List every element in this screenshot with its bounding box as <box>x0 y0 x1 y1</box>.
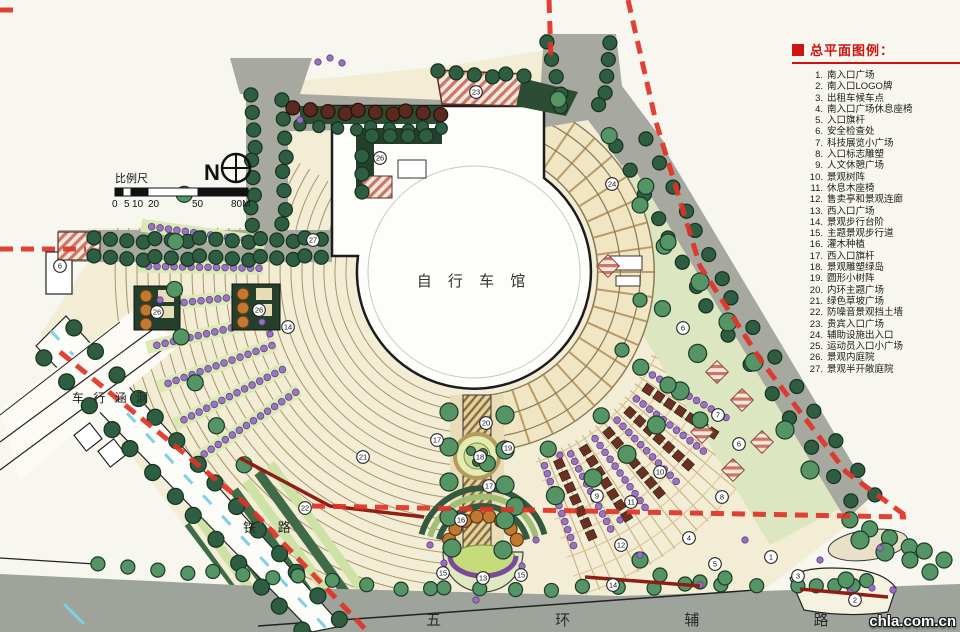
tree <box>386 107 400 121</box>
tree <box>652 212 666 226</box>
scale-label: 比例尺 <box>115 171 148 185</box>
tree <box>592 98 606 112</box>
tree <box>575 579 589 593</box>
tree <box>419 129 433 143</box>
svg-text:22: 22 <box>301 504 309 513</box>
tree <box>148 232 162 246</box>
svg-text:10: 10 <box>656 468 664 477</box>
tree <box>509 583 523 597</box>
plan-marker: 21 <box>357 451 370 464</box>
plan-marker: 26 <box>374 152 387 165</box>
svg-text:24: 24 <box>608 180 616 189</box>
tree <box>208 531 224 547</box>
tree <box>618 445 636 463</box>
plan-marker: 6 <box>733 438 746 451</box>
tree <box>151 563 165 577</box>
tree <box>270 251 284 265</box>
plan-marker: 13 <box>477 572 490 585</box>
svg-text:14: 14 <box>284 323 292 332</box>
tree <box>486 70 500 84</box>
tree <box>271 598 287 614</box>
northwest-junction <box>230 58 312 94</box>
svg-text:15: 15 <box>517 571 525 580</box>
svg-text:12: 12 <box>617 541 625 550</box>
svg-text:18: 18 <box>476 453 484 462</box>
tree <box>120 234 134 248</box>
tree <box>394 582 408 596</box>
tree <box>278 203 292 217</box>
tree <box>192 249 206 263</box>
tree <box>916 543 932 559</box>
plan-marker: 24 <box>606 178 619 191</box>
legend-item: 11.休息木座椅 <box>806 183 960 194</box>
legend-item: 13.西入口广场 <box>806 206 960 217</box>
svg-text:0: 0 <box>112 199 118 210</box>
legend-item: 25.运动员入口小广场 <box>806 341 960 352</box>
svg-text:9: 9 <box>595 492 599 501</box>
tree <box>546 487 564 505</box>
legend-item: 8.入口标志雕塑 <box>806 149 960 160</box>
tree <box>449 66 463 80</box>
svg-text:23: 23 <box>472 88 480 97</box>
tree <box>431 64 445 78</box>
tree <box>338 106 352 120</box>
bottom-road-label: 五 环 辅 路 <box>426 612 884 629</box>
tree <box>245 105 259 119</box>
tree <box>600 69 614 83</box>
tree <box>351 103 365 117</box>
plan-marker: 19 <box>502 442 515 455</box>
svg-text:11: 11 <box>627 498 635 507</box>
tree <box>691 273 709 291</box>
tree <box>544 583 558 597</box>
tree <box>692 412 708 428</box>
tree <box>237 288 249 300</box>
svg-text:14: 14 <box>609 581 617 590</box>
legend-item: 15.主题景观步行道 <box>806 228 960 239</box>
tree <box>440 403 458 421</box>
plan-marker: 9 <box>591 490 604 503</box>
tree <box>278 131 292 145</box>
plan-marker: 8 <box>716 491 729 504</box>
plan-marker: 17 <box>483 480 496 493</box>
tree <box>360 578 374 592</box>
tree <box>639 132 653 146</box>
legend-item: 24.辅助设施出入口 <box>806 330 960 341</box>
tree <box>91 557 105 571</box>
tree <box>355 149 369 163</box>
svg-text:2: 2 <box>853 596 857 605</box>
svg-text:26: 26 <box>153 308 161 317</box>
plan-marker: 22 <box>299 502 312 515</box>
tree <box>702 248 716 262</box>
bench <box>616 276 640 286</box>
svg-text:15: 15 <box>439 569 447 578</box>
tree <box>838 572 854 588</box>
tree <box>173 329 189 345</box>
tree <box>332 122 344 134</box>
svg-text:6: 6 <box>737 440 741 449</box>
svg-text:7: 7 <box>716 411 720 420</box>
tree <box>470 510 483 523</box>
svg-text:3: 3 <box>796 572 800 581</box>
tree <box>148 250 162 264</box>
tree <box>652 156 666 170</box>
master-plan-page: 6232627262614246768109111245132142017191… <box>0 0 960 632</box>
plan-marker: 14 <box>607 579 620 592</box>
legend-item: 12.售卖亭和景观连廊 <box>806 194 960 205</box>
legend-item: 10.景观树阵 <box>806 172 960 183</box>
svg-text:10: 10 <box>132 199 144 210</box>
tree <box>331 611 347 627</box>
plan-marker: 27 <box>307 234 320 247</box>
legend-item: 14.景观步行台阶 <box>806 217 960 228</box>
plan-marker: 1 <box>765 551 778 564</box>
tree <box>746 320 760 334</box>
svg-text:17: 17 <box>485 482 493 491</box>
legend-item: 26.景观内庭院 <box>806 352 960 363</box>
tree <box>248 140 262 154</box>
tree <box>244 88 258 102</box>
svg-text:16: 16 <box>457 516 465 525</box>
legend-item: 19.圆形小树阵 <box>806 273 960 284</box>
legend-item: 5.入口旗杆 <box>806 115 960 126</box>
tree <box>801 461 819 479</box>
tree <box>87 343 103 359</box>
tree <box>209 232 223 246</box>
tree <box>776 421 794 439</box>
tree <box>276 112 290 126</box>
legend-item: 3.出租车候车点 <box>806 93 960 104</box>
tree <box>66 320 82 336</box>
plan-marker: 11 <box>625 496 638 509</box>
tree <box>922 564 938 580</box>
tree <box>247 123 261 137</box>
tree <box>245 218 259 232</box>
svg-text:6: 6 <box>58 262 62 271</box>
tree <box>540 441 556 457</box>
tree <box>647 416 665 434</box>
tree <box>399 104 413 118</box>
legend-item: 2.南入口LOGO牌 <box>806 81 960 92</box>
plan-marker: 5 <box>709 558 722 571</box>
tree <box>140 318 152 330</box>
tree <box>550 91 566 107</box>
tree <box>416 106 430 120</box>
plan-marker: 23 <box>470 86 483 99</box>
tree <box>279 150 293 164</box>
tree <box>236 568 250 582</box>
tree <box>209 250 223 264</box>
legend-panel: 总平面图例： 1.南入口广场2.南入口LOGO牌3.出租车候车点4.南入口广场休… <box>792 40 960 375</box>
tree <box>615 343 629 357</box>
tree <box>310 588 326 604</box>
tree <box>225 234 239 248</box>
tree <box>496 406 514 424</box>
svg-text:1: 1 <box>769 553 773 562</box>
tree <box>715 272 729 286</box>
legend-title: 总平面图例： <box>810 40 894 59</box>
tree <box>276 164 290 178</box>
plan-marker: 7 <box>712 409 725 422</box>
tree <box>104 422 120 438</box>
svg-text:21: 21 <box>359 453 367 462</box>
legend-items: 1.南入口广场2.南入口LOGO牌3.出租车候车点4.南入口广场休息座椅5.入口… <box>792 70 960 375</box>
tree <box>187 375 203 391</box>
tree <box>270 233 284 247</box>
tree <box>140 290 152 302</box>
north-label: N <box>204 160 220 185</box>
tree <box>633 293 647 307</box>
svg-text:17: 17 <box>433 436 441 445</box>
tree <box>206 564 220 578</box>
tree <box>181 566 195 580</box>
tree <box>321 105 335 119</box>
svg-text:26: 26 <box>376 154 384 163</box>
plan-marker: 20 <box>480 417 493 430</box>
legend-item: 9.人文休憩广场 <box>806 160 960 171</box>
tree <box>168 234 184 250</box>
tree <box>499 67 513 81</box>
tree <box>225 252 239 266</box>
tree <box>383 129 397 143</box>
legend-item: 7.科技展览小广场 <box>806 138 960 149</box>
tree <box>208 418 224 434</box>
svg-text:4: 4 <box>687 534 691 543</box>
tree <box>653 568 667 582</box>
plan-marker: 2 <box>849 594 862 607</box>
tree <box>121 560 135 574</box>
tree <box>286 101 300 115</box>
tree <box>103 232 117 246</box>
plan-marker: 17 <box>431 434 444 447</box>
legend-item: 1.南入口广场 <box>806 70 960 81</box>
svg-text:26: 26 <box>255 306 263 315</box>
tree <box>185 507 201 523</box>
svg-text:80M: 80M <box>231 199 250 210</box>
tree <box>237 316 249 328</box>
tree <box>496 511 514 529</box>
plan-marker: 12 <box>615 539 628 552</box>
legend-item: 16.灌木种植 <box>806 239 960 250</box>
legend-item: 17.西入口旗杆 <box>806 251 960 262</box>
tree <box>517 69 531 83</box>
tree <box>437 581 451 595</box>
tree <box>424 582 438 596</box>
plan-marker: 15 <box>515 569 528 582</box>
svg-text:19: 19 <box>504 444 512 453</box>
plan-marker: 18 <box>474 451 487 464</box>
tree <box>675 255 689 269</box>
tree <box>829 434 843 448</box>
tree <box>401 129 415 143</box>
plan-marker: 10 <box>654 466 667 479</box>
legend-item: 18.景观雕塑绿岛 <box>806 262 960 273</box>
tree <box>790 380 804 394</box>
tree <box>654 301 670 317</box>
tree <box>167 281 183 297</box>
tree <box>467 68 481 82</box>
svg-text:20: 20 <box>148 199 160 210</box>
tree <box>253 250 267 264</box>
tree <box>314 250 328 264</box>
tree <box>632 197 648 213</box>
tree <box>365 129 379 143</box>
plan-marker: 6 <box>677 322 690 335</box>
tree <box>601 128 617 144</box>
tree <box>435 122 447 134</box>
tree <box>120 252 134 266</box>
tree <box>549 70 563 84</box>
tree <box>623 163 637 177</box>
tree <box>313 121 325 133</box>
tree <box>87 249 101 263</box>
tree <box>434 108 448 122</box>
tree <box>275 217 289 231</box>
tree <box>294 622 310 632</box>
tree <box>351 124 363 136</box>
tree <box>660 377 676 393</box>
tree <box>164 251 178 265</box>
building-label: 自 行 车 馆 <box>417 273 532 290</box>
legend-item: 4.南入口广场休息座椅 <box>806 104 960 115</box>
tree <box>303 103 317 117</box>
svg-text:8: 8 <box>720 493 724 502</box>
tree <box>851 531 869 549</box>
tree <box>805 440 819 454</box>
tree <box>167 488 183 504</box>
plan-marker: 16 <box>455 514 468 527</box>
tree <box>266 571 280 585</box>
tree <box>633 359 649 375</box>
tree <box>440 473 458 491</box>
legend-bullet-icon <box>792 44 804 56</box>
tree <box>638 178 654 194</box>
culvert-label: 车 行 涵 洞 <box>72 390 151 405</box>
tree <box>768 350 782 364</box>
legend-item: 27.景观半开敞庭院 <box>806 364 960 375</box>
tree <box>87 231 101 245</box>
svg-text:5: 5 <box>124 199 130 210</box>
tree <box>827 470 841 484</box>
svg-text:5: 5 <box>713 560 717 569</box>
tree <box>603 36 617 50</box>
watermark: chla.com.cn <box>869 613 956 630</box>
svg-text:6: 6 <box>681 324 685 333</box>
plan-marker: 26 <box>151 306 164 319</box>
legend-item: 22.防噪音景观挡土墙 <box>806 307 960 318</box>
tree <box>36 350 52 366</box>
plan-marker: 6 <box>54 260 67 273</box>
tree <box>355 185 369 199</box>
tree <box>483 510 496 523</box>
tree <box>369 105 383 119</box>
tree <box>237 302 249 314</box>
tree <box>494 541 512 559</box>
tree <box>253 232 267 246</box>
tree <box>355 167 369 181</box>
tree <box>325 573 339 587</box>
legend-item: 6.安全检查处 <box>806 126 960 137</box>
tree <box>689 344 707 362</box>
tree <box>298 249 312 263</box>
tree <box>496 476 514 494</box>
tree <box>936 552 952 568</box>
legend-item: 23.贵宾入口广场 <box>806 319 960 330</box>
plan-marker: 4 <box>683 532 696 545</box>
plan-marker: 15 <box>437 567 450 580</box>
plan-marker: 26 <box>253 304 266 317</box>
tree <box>103 250 117 264</box>
tree <box>593 408 609 424</box>
tree <box>902 552 918 568</box>
tree <box>122 441 138 457</box>
svg-text:50: 50 <box>192 199 204 210</box>
tree <box>807 404 821 418</box>
svg-text:13: 13 <box>479 574 487 583</box>
tree <box>765 387 779 401</box>
tree <box>443 539 461 557</box>
legend-underline <box>792 62 960 64</box>
tree <box>291 569 305 583</box>
tree <box>59 374 75 390</box>
legend-item: 20.内环主题广场 <box>806 285 960 296</box>
tree <box>192 231 206 245</box>
svg-text:27: 27 <box>309 236 317 245</box>
tree <box>844 494 858 508</box>
tree <box>699 299 713 313</box>
tree <box>140 304 152 316</box>
tree <box>109 367 125 383</box>
tree <box>277 184 291 198</box>
legend-item: 21.绿色草坡广场 <box>806 296 960 307</box>
tree <box>145 465 161 481</box>
tree <box>750 579 764 593</box>
railway-label: 铁 路 <box>243 520 300 535</box>
tree <box>660 234 676 250</box>
svg-text:20: 20 <box>482 419 490 428</box>
plan-marker: 14 <box>282 321 295 334</box>
tree <box>584 469 602 487</box>
tree <box>601 53 615 67</box>
tree <box>510 533 523 546</box>
plan-marker: 3 <box>792 570 805 583</box>
tree <box>718 571 732 585</box>
